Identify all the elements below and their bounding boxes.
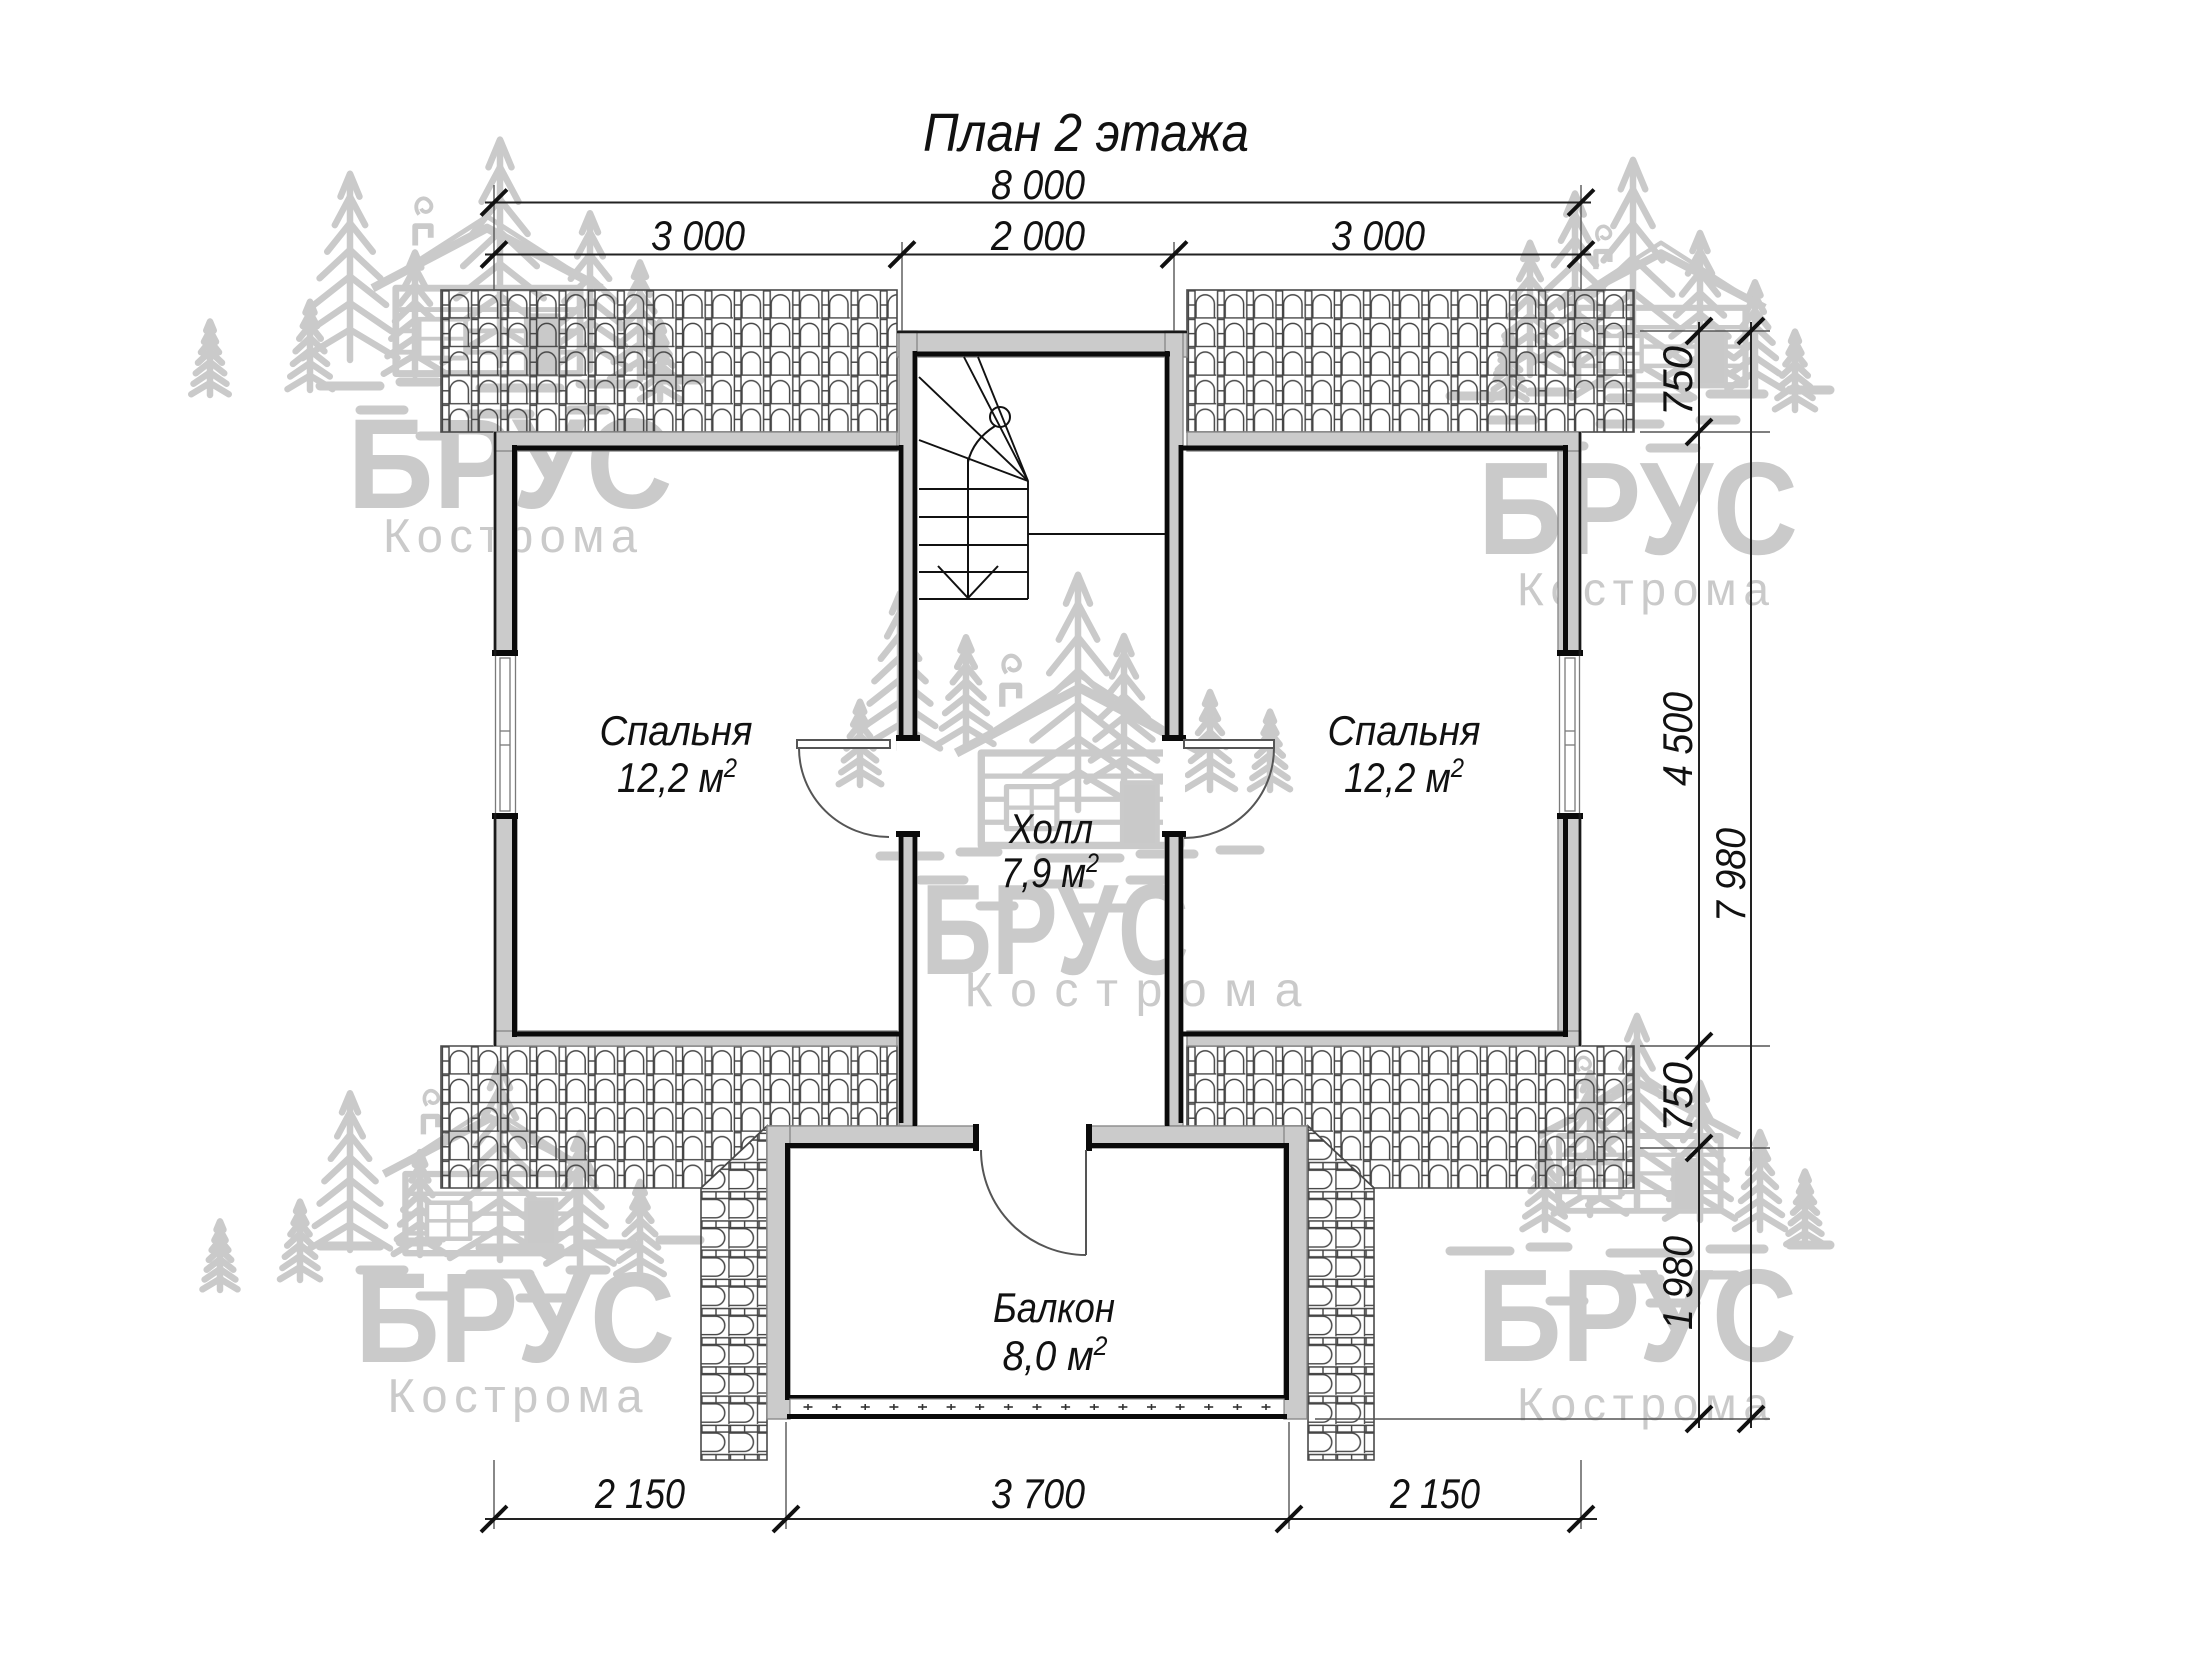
svg-text:7,9 м2: 7,9 м2 [1001,848,1099,896]
svg-text:Холл: Холл [1008,805,1093,852]
svg-text:Балкон: Балкон [993,1284,1115,1331]
svg-text:8,0 м2: 8,0 м2 [1003,1331,1108,1379]
svg-text:Спальня: Спальня [1328,707,1481,754]
svg-text:3 700: 3 700 [991,1470,1086,1517]
svg-text:Кострома: Кострома [1517,563,1769,615]
svg-text:12,2 м2: 12,2 м2 [1344,753,1464,801]
svg-text:План 2 этажа: План 2 этажа [923,103,1249,163]
svg-text:7 980: 7 980 [1707,827,1754,922]
svg-text:Кострома: Кострома [388,1369,644,1422]
svg-text:1 980: 1 980 [1654,1235,1701,1330]
svg-text:3 000: 3 000 [651,212,746,259]
svg-text:12,2 м2: 12,2 м2 [617,753,737,801]
svg-text:БРУС: БРУС [1477,1242,1797,1389]
svg-text:750: 750 [1654,1061,1701,1132]
svg-text:Кострома: Кострома [1517,1378,1769,1430]
svg-text:750: 750 [1654,345,1701,416]
svg-text:4 500: 4 500 [1654,691,1701,786]
svg-text:3 000: 3 000 [1331,212,1426,259]
svg-text:2 000: 2 000 [990,212,1085,259]
svg-text:2 150: 2 150 [1389,1470,1480,1517]
svg-text:8 000: 8 000 [991,161,1086,208]
svg-text:Спальня: Спальня [600,707,753,754]
svg-text:2 150: 2 150 [594,1470,685,1517]
